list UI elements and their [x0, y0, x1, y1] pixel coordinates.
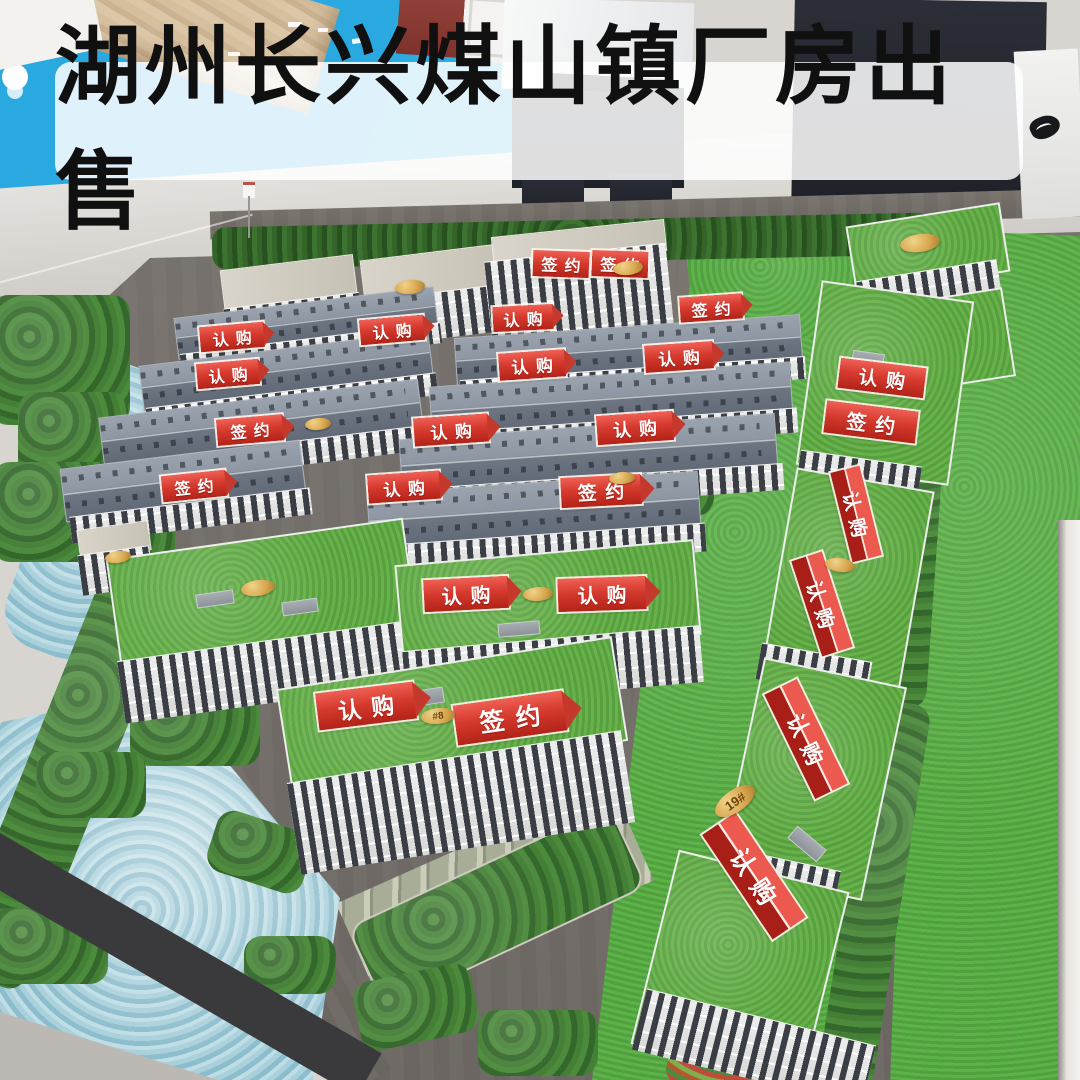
- banner-text: 认购: [204, 323, 259, 352]
- banner-text: 签约: [222, 416, 277, 445]
- banner-text: 认购: [375, 473, 434, 502]
- banner-text: 认购: [326, 684, 407, 727]
- banner-text: 认购: [496, 305, 551, 332]
- banner-text: 认购: [432, 578, 500, 610]
- banner-arrow-tip: [564, 348, 578, 375]
- banner-arrow-tip: [262, 321, 275, 346]
- banner-rengou: 认购: [492, 304, 553, 332]
- banner-arrow-tip: [741, 293, 754, 318]
- bushes: [36, 752, 146, 818]
- banner-arrow-tip: [439, 470, 454, 499]
- banner-rengou: 认购: [423, 576, 509, 612]
- banner-rengou: 认购: [498, 349, 566, 381]
- banner-rengou: 认购: [644, 341, 714, 373]
- banner-arrow-tip: [422, 314, 435, 339]
- banner-rengou: 认购: [596, 411, 674, 445]
- title-banner: 湖州长兴煤山镇厂房出售: [55, 62, 1023, 180]
- banner-arrow-tip: [712, 340, 726, 367]
- banner-text: 认购: [849, 361, 915, 396]
- bushes: [478, 1010, 598, 1076]
- banner-text: 认购: [568, 578, 636, 609]
- banner-rengou: 认购: [557, 576, 646, 612]
- glass-case-edge: [1058, 520, 1080, 1080]
- building-number-text: #8: [432, 710, 444, 722]
- banner-arrow-tip: [257, 358, 270, 383]
- banner-text: 认购: [422, 416, 481, 445]
- banner-arrow-tip: [672, 410, 687, 439]
- banner-rengou: 认购: [367, 471, 441, 504]
- banner-text: 签约: [836, 404, 906, 441]
- banner-qianyue: 签约: [533, 250, 590, 278]
- banner-arrow-tip: [224, 469, 239, 496]
- banner-arrow-tip: [507, 575, 523, 608]
- banner-text: 认购: [364, 316, 419, 345]
- banner-text: 认购: [604, 413, 666, 443]
- photo-of-industrial-park-scale-model: 认购认购认购签约签约签约认购认购认购签约认购认购认购签约签约认购签约认购认购认购…: [0, 0, 1080, 1080]
- banner-text: 认购: [650, 343, 709, 372]
- banner-arrow-tip: [487, 413, 502, 442]
- banner-arrow-tip: [640, 473, 656, 504]
- banner-qianyue: 签约: [679, 293, 743, 322]
- title-banner-text: 湖州长兴煤山镇厂房出售: [55, 0, 1023, 246]
- banner-arrow-tip: [645, 575, 661, 608]
- banner-text: 签约: [683, 294, 738, 322]
- banner-rengou: 认购: [413, 413, 489, 446]
- banner-text: 认购: [200, 360, 255, 389]
- banner-arrow-tip: [281, 413, 295, 440]
- banner-text: 签约: [166, 471, 222, 500]
- banner-text: 认购: [503, 351, 562, 380]
- banner-text: 签约: [534, 251, 588, 277]
- banner-arrow-tip: [552, 303, 564, 328]
